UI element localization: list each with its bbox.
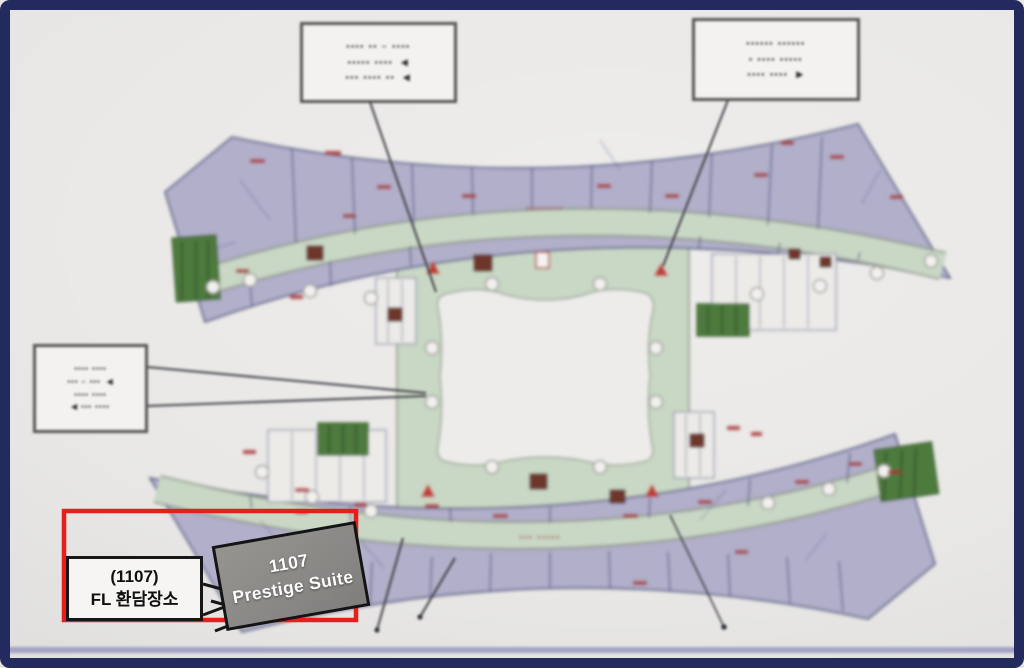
- location-room-number: (1107): [110, 566, 158, 588]
- location-label-box: (1107) FL 환담장소: [66, 556, 203, 621]
- slide-canvas: ▪▪▪▪▪▪▪▪ ▪▪▪ ▪▪▪▪▪ ▪▪▪▪ ▪▪ – ▪▪▪▪ ▪▪▪▪▪ …: [0, 0, 1024, 668]
- location-description: FL 환담장소: [91, 589, 179, 611]
- annotation-layer: 1107 Prestige Suite (1107) FL 환담장소: [0, 0, 1024, 668]
